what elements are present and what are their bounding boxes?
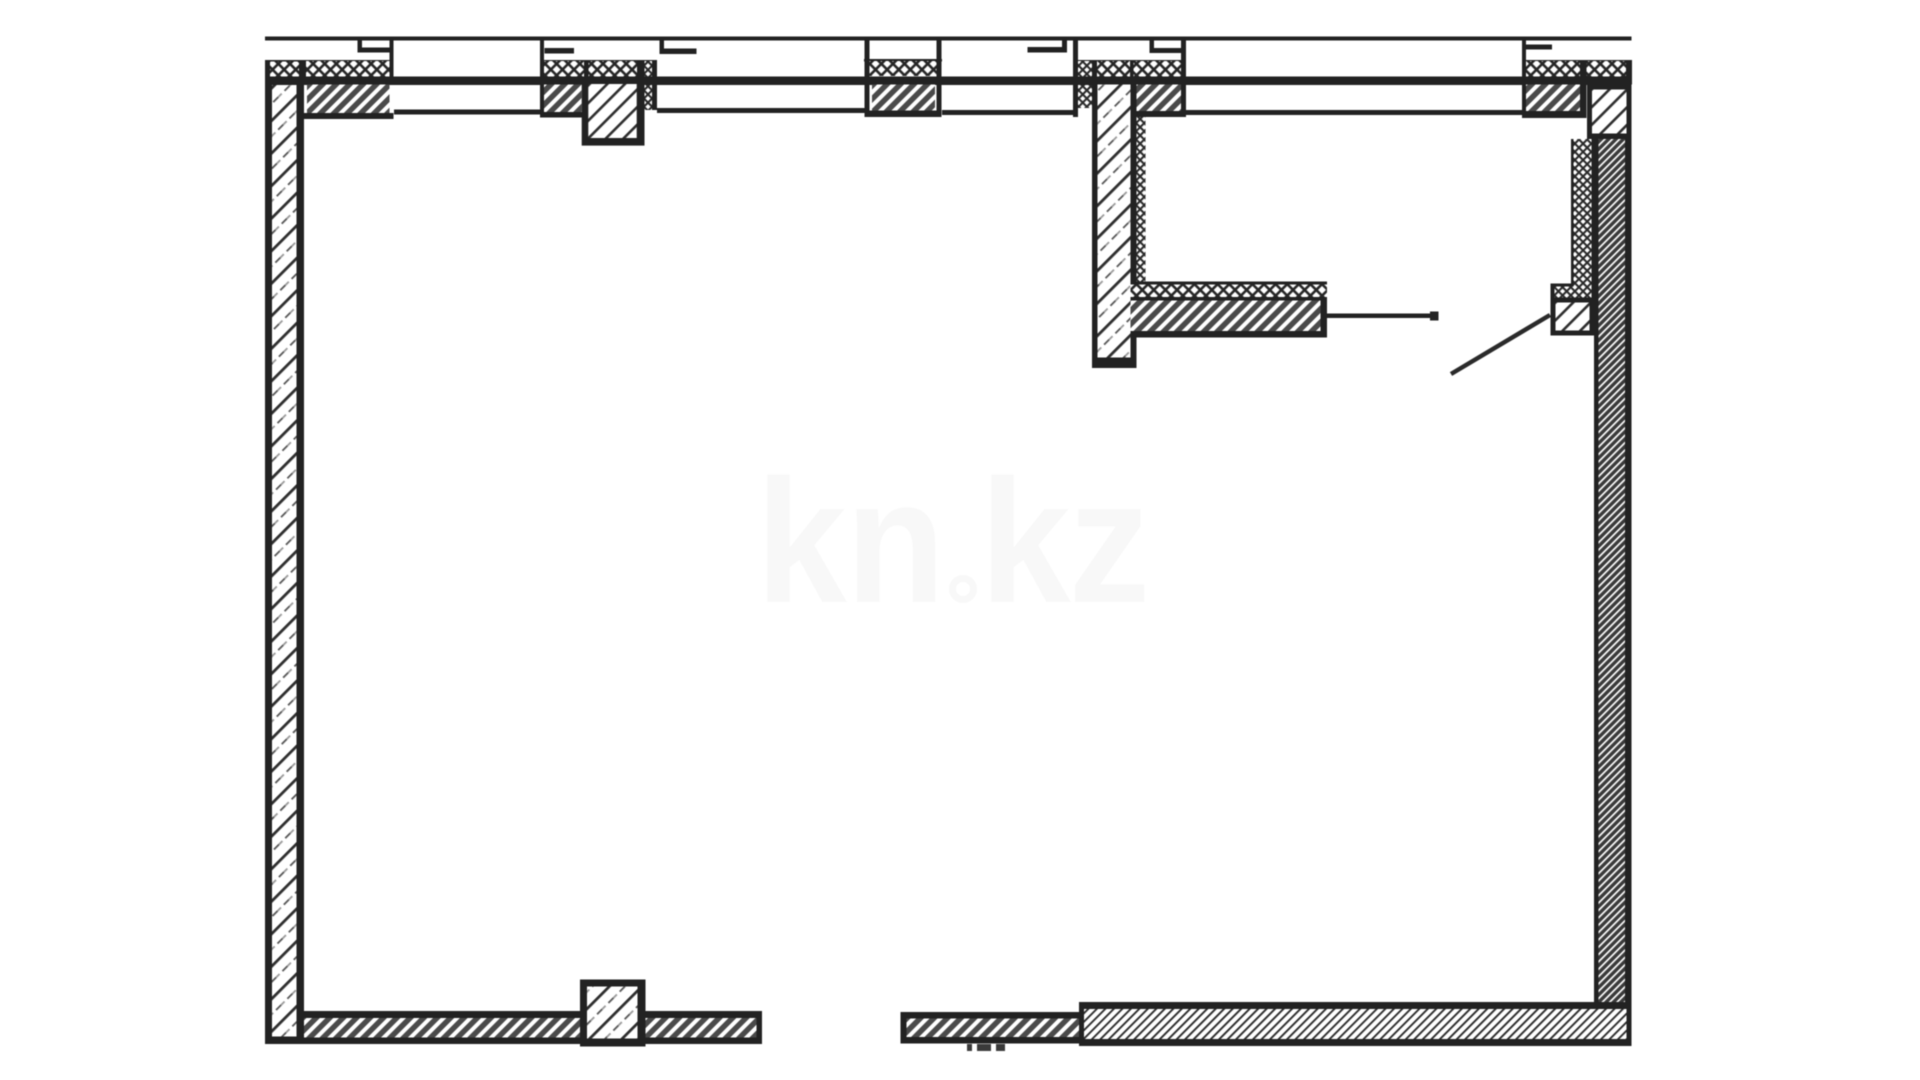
svg-text:kn: kn [756, 442, 944, 639]
svg-text:kz: kz [980, 442, 1148, 639]
